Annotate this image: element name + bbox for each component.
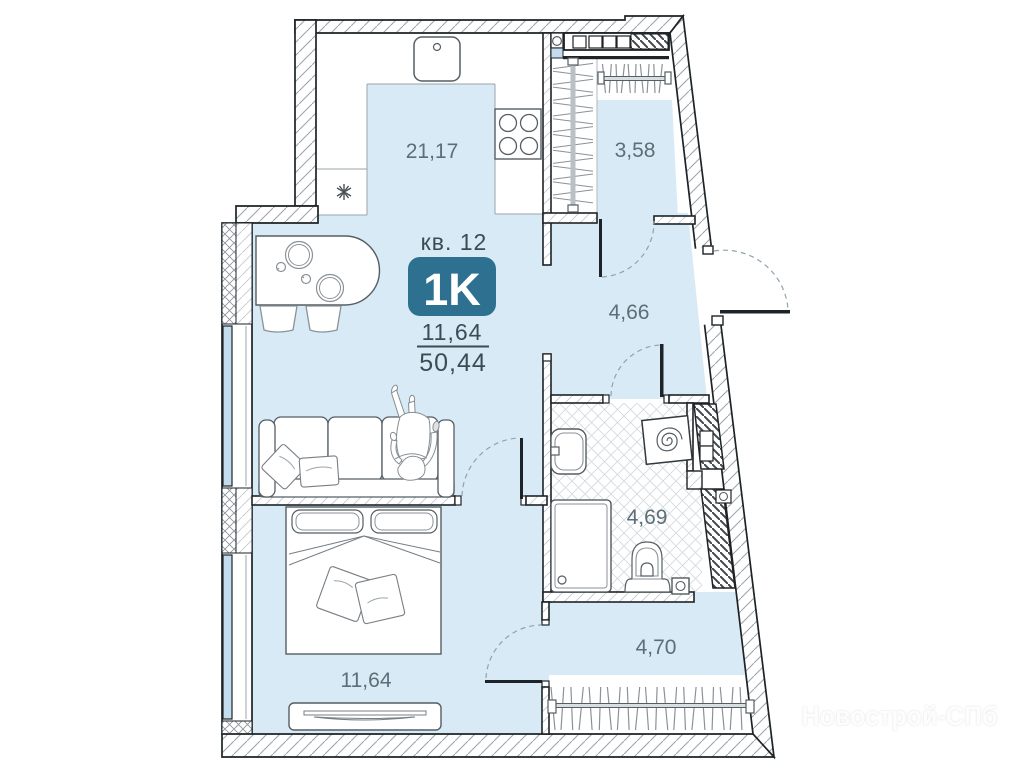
svg-text:1K: 1K bbox=[423, 264, 481, 315]
svg-text:кв. 12: кв. 12 bbox=[421, 229, 488, 255]
svg-text:50,44: 50,44 bbox=[419, 349, 487, 377]
svg-text:4,70: 4,70 bbox=[636, 636, 677, 659]
svg-text:4,69: 4,69 bbox=[627, 506, 668, 529]
svg-text:21,17: 21,17 bbox=[406, 140, 459, 163]
svg-text:4,66: 4,66 bbox=[609, 301, 650, 324]
svg-text:11,64: 11,64 bbox=[422, 319, 483, 345]
svg-text:3,58: 3,58 bbox=[615, 139, 656, 162]
svg-text:11,64: 11,64 bbox=[341, 669, 392, 692]
